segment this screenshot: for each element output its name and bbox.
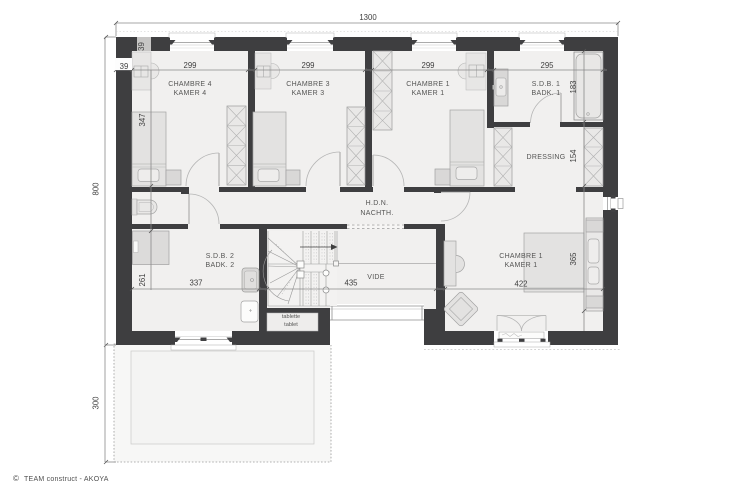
svg-text:422: 422 — [514, 280, 527, 289]
svg-text:CHAMBRE 4: CHAMBRE 4 — [168, 81, 212, 88]
svg-text:CHAMBRE 1: CHAMBRE 1 — [499, 253, 543, 260]
svg-text:DRESSING: DRESSING — [527, 154, 566, 161]
svg-text:KAMER 3: KAMER 3 — [292, 90, 325, 97]
svg-text:300: 300 — [92, 396, 101, 410]
svg-text:BADK. 2: BADK. 2 — [206, 262, 235, 269]
svg-text:337: 337 — [189, 279, 202, 288]
svg-text:183: 183 — [569, 80, 578, 93]
svg-text:435: 435 — [344, 279, 358, 288]
svg-text:S.D.B. 1: S.D.B. 1 — [532, 81, 560, 88]
svg-text:347: 347 — [138, 113, 147, 126]
svg-text:©: © — [13, 474, 19, 483]
svg-text:NACHTH.: NACHTH. — [360, 210, 393, 217]
svg-text:365: 365 — [569, 252, 578, 266]
svg-text:CHAMBRE 1: CHAMBRE 1 — [406, 81, 450, 88]
svg-text:S.D.B. 2: S.D.B. 2 — [206, 253, 234, 260]
svg-text:H.D.N.: H.D.N. — [366, 200, 389, 207]
svg-text:VIDE: VIDE — [367, 274, 385, 281]
svg-text:KAMER 1: KAMER 1 — [505, 262, 538, 269]
svg-text:KAMER 4: KAMER 4 — [174, 90, 207, 97]
svg-text:BADK. 1: BADK. 1 — [532, 90, 561, 97]
svg-text:39: 39 — [120, 62, 129, 71]
svg-text:800: 800 — [92, 182, 101, 196]
svg-text:1300: 1300 — [359, 13, 377, 22]
svg-text:39: 39 — [137, 42, 146, 51]
svg-text:tablette: tablette — [282, 314, 300, 320]
svg-text:154: 154 — [569, 149, 578, 163]
svg-text:299: 299 — [421, 61, 434, 70]
svg-text:KAMER 1: KAMER 1 — [412, 90, 445, 97]
svg-text:295: 295 — [540, 61, 554, 70]
svg-text:261: 261 — [138, 273, 147, 286]
svg-text:299: 299 — [183, 61, 196, 70]
svg-text:tablet: tablet — [284, 322, 298, 328]
svg-text:299: 299 — [301, 61, 314, 70]
svg-text:TEAM construct - AKOYA: TEAM construct - AKOYA — [24, 476, 109, 483]
svg-text:CHAMBRE 3: CHAMBRE 3 — [286, 81, 330, 88]
